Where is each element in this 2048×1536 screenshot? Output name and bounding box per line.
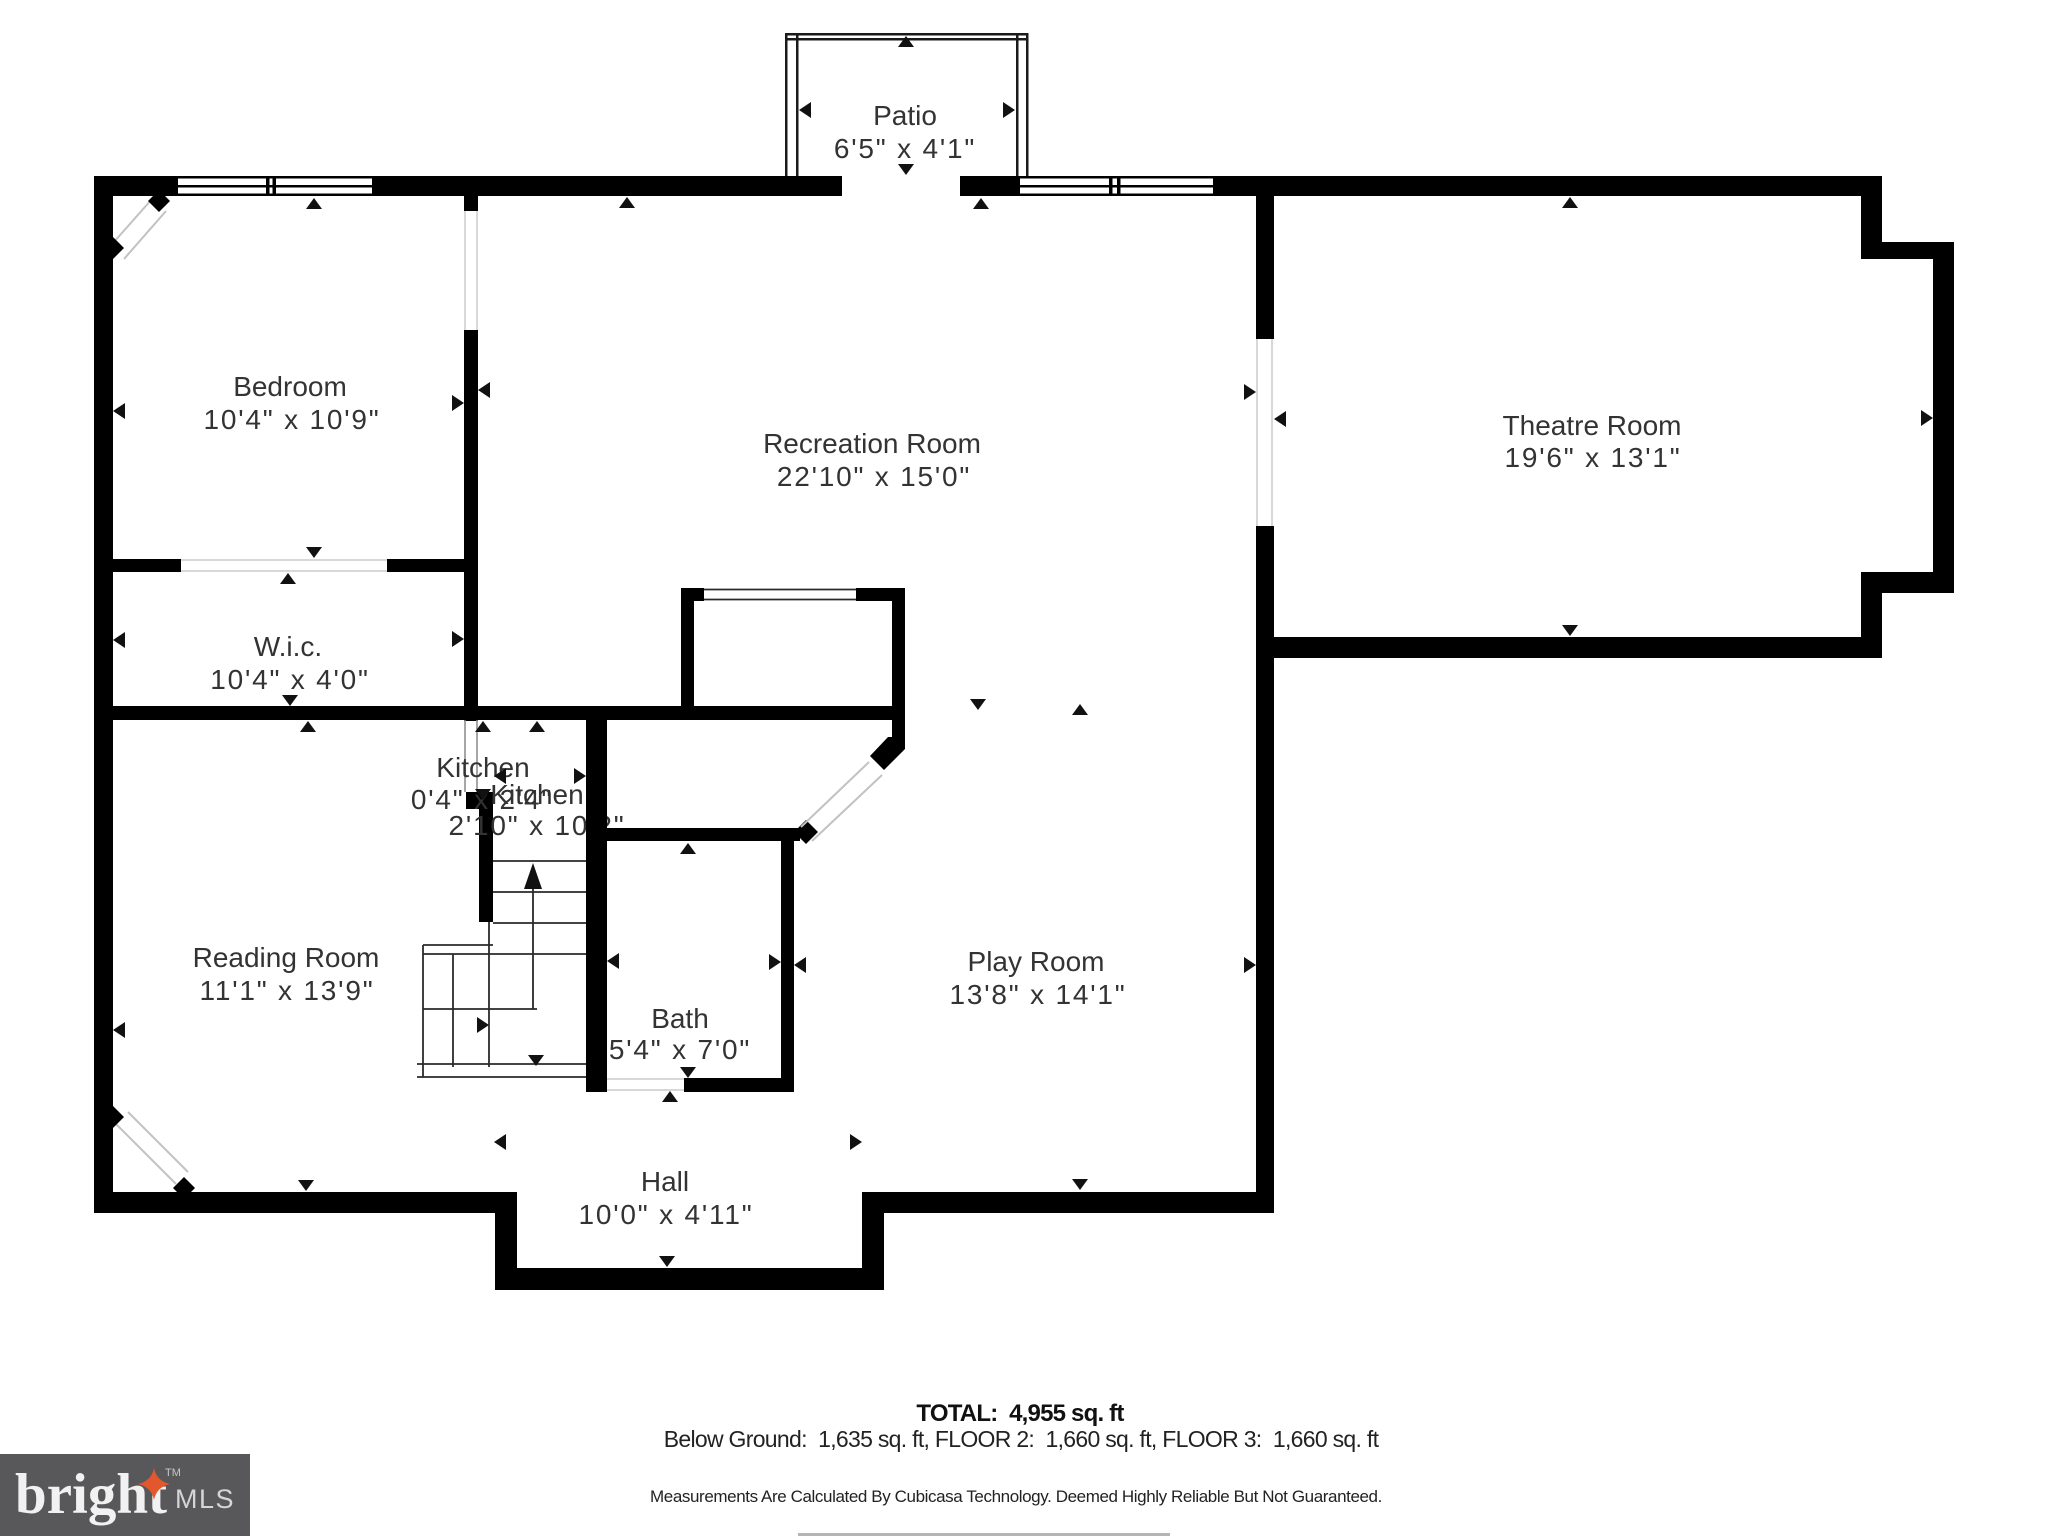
svg-text:19'6" x 13'1": 19'6" x 13'1" [1505, 442, 1682, 473]
svg-text:22'10" x 15'0": 22'10" x 15'0" [777, 461, 971, 492]
svg-text:TM: TM [165, 1467, 181, 1479]
svg-text:Below Ground: 1,635 sq. ft, F: Below Ground: 1,635 sq. ft, FLOOR 2: 1,6… [664, 1426, 1380, 1452]
svg-text:Bath: Bath [651, 1003, 709, 1034]
svg-text:bright: bright [15, 1463, 167, 1526]
svg-text:5'4" x 7'0": 5'4" x 7'0" [609, 1034, 751, 1065]
svg-text:Kitchen: Kitchen [490, 779, 583, 810]
svg-text:11'1" x 13'9": 11'1" x 13'9" [200, 975, 375, 1006]
svg-text:W.i.c.: W.i.c. [254, 631, 322, 662]
svg-text:10'4" x 10'9": 10'4" x 10'9" [204, 404, 381, 435]
svg-text:MLS: MLS [175, 1484, 235, 1514]
svg-text:Recreation Room: Recreation Room [763, 428, 981, 459]
svg-text:Measurements Are Calculated By: Measurements Are Calculated By Cubicasa … [650, 1487, 1382, 1506]
svg-text:6'5" x 4'1": 6'5" x 4'1" [834, 133, 976, 164]
svg-text:TOTAL: 4,955 sq. ft: TOTAL: 4,955 sq. ft [916, 1400, 1124, 1427]
svg-text:13'8" x 14'1": 13'8" x 14'1" [950, 979, 1127, 1010]
svg-text:Hall: Hall [641, 1166, 689, 1197]
svg-text:Patio: Patio [873, 100, 937, 131]
svg-text:10'4" x 4'0": 10'4" x 4'0" [210, 664, 370, 695]
svg-text:Play Room: Play Room [968, 946, 1105, 977]
svg-text:Reading Room: Reading Room [193, 942, 380, 973]
svg-text:Bedroom: Bedroom [233, 371, 347, 402]
svg-text:Theatre Room: Theatre Room [1503, 410, 1682, 441]
svg-text:10'0" x 4'11": 10'0" x 4'11" [579, 1199, 754, 1230]
